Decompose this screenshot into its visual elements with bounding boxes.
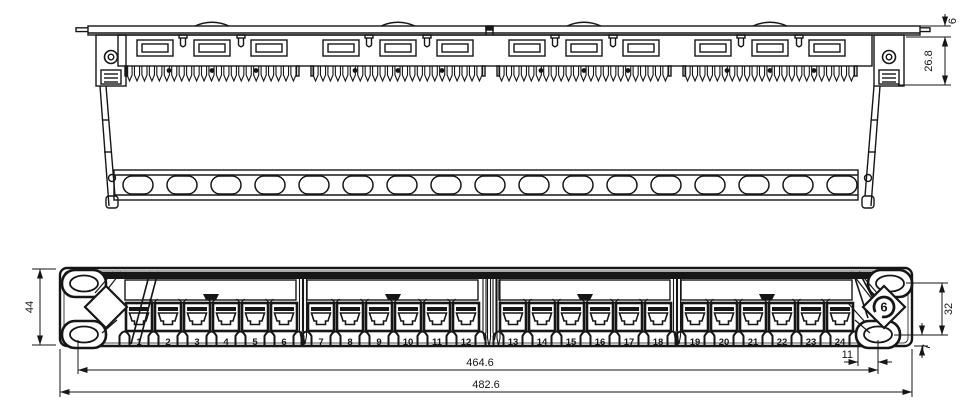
rj45-shutter-bar — [311, 307, 331, 311]
port-number: 1 — [136, 337, 142, 348]
port-number: 21 — [748, 337, 759, 348]
idc-divider-dot — [582, 69, 585, 72]
rj45-shutter-bar — [274, 307, 294, 311]
port-number: 19 — [690, 337, 701, 348]
mount-hole-boss — [62, 321, 106, 348]
port-number: 2 — [165, 337, 170, 348]
cat6-mark-text: 6 — [880, 300, 887, 315]
dim-label-mount-span: 464.6 — [466, 357, 494, 369]
port-number: 5 — [252, 337, 258, 348]
dim-label-lip: 6 — [947, 18, 959, 24]
rj45-shutter-bar — [685, 307, 705, 311]
rj45-shutter-bar — [772, 307, 792, 311]
idc-divider-dot — [725, 69, 728, 72]
dim-label-depth: 26.8 — [923, 50, 935, 71]
center-seam-mark — [486, 26, 493, 30]
dim-label-hole-span: 32 — [943, 303, 955, 315]
port-number: 23 — [806, 337, 817, 348]
port-number: 16 — [595, 337, 606, 348]
rj45-shutter-bar — [714, 307, 734, 311]
port-number: 12 — [461, 337, 472, 348]
port-number: 13 — [508, 337, 519, 348]
port-number: 3 — [194, 337, 199, 348]
idc-divider-dot — [396, 69, 399, 72]
dim-label-hole-inset: 11 — [842, 349, 853, 361]
idc-divider-dot — [210, 69, 213, 72]
idc-divider-dot — [167, 69, 170, 72]
port-number: 10 — [403, 337, 414, 348]
dim-label-panel-width: 482.6 — [472, 379, 500, 391]
idc-divider-dot — [440, 69, 443, 72]
rj45-shutter-bar — [648, 307, 668, 311]
rj45-shutter-bar — [743, 307, 763, 311]
port-number: 7 — [318, 337, 323, 348]
rj45-shutter-bar — [427, 307, 447, 311]
rj45-shutter-bar — [340, 307, 360, 311]
rj45-shutter-bar — [129, 307, 149, 311]
port-number: 24 — [835, 337, 846, 348]
rj45-shutter-bar — [590, 307, 610, 311]
rj45-shutter-bar — [532, 307, 552, 311]
idc-divider-dot — [539, 69, 542, 72]
rj45-shutter-bar — [619, 307, 639, 311]
rj45-shutter-bar — [561, 307, 581, 311]
idc-divider-dot — [812, 69, 815, 72]
rj45-shutter-bar — [503, 307, 523, 311]
idc-divider-dot — [254, 69, 257, 72]
rj45-shutter-bar — [801, 307, 821, 311]
port-number: 4 — [223, 337, 229, 348]
port-number: 6 — [281, 337, 286, 348]
port-number: 18 — [653, 337, 664, 348]
idc-divider-dot — [768, 69, 771, 72]
rj45-shutter-bar — [187, 307, 207, 311]
port-number: 14 — [537, 337, 548, 348]
port-number: 22 — [777, 337, 788, 348]
dim-label-height: 44 — [24, 301, 36, 313]
rj45-shutter-bar — [830, 307, 850, 311]
dim-label-hole-bottom: 7 — [921, 344, 933, 350]
rj45-shutter-bar — [369, 307, 389, 311]
port-number: 15 — [566, 337, 577, 348]
port-number: 20 — [719, 337, 730, 348]
technical-drawing-canvas: 1234567891011121314151617181920212223246… — [0, 0, 966, 403]
port-number: 8 — [347, 337, 352, 348]
rj45-shutter-bar — [398, 307, 418, 311]
rj45-shutter-bar — [216, 307, 236, 311]
port-number: 11 — [432, 337, 443, 348]
rj45-shutter-bar — [456, 307, 476, 311]
rj45-shutter-bar — [158, 307, 178, 311]
port-number: 17 — [624, 337, 635, 348]
idc-divider-dot — [353, 69, 356, 72]
idc-divider-dot — [626, 69, 629, 72]
patch-panel-drawing: 1234567891011121314151617181920212223246… — [0, 0, 966, 403]
port-number: 9 — [376, 337, 381, 348]
rj45-shutter-bar — [245, 307, 265, 311]
